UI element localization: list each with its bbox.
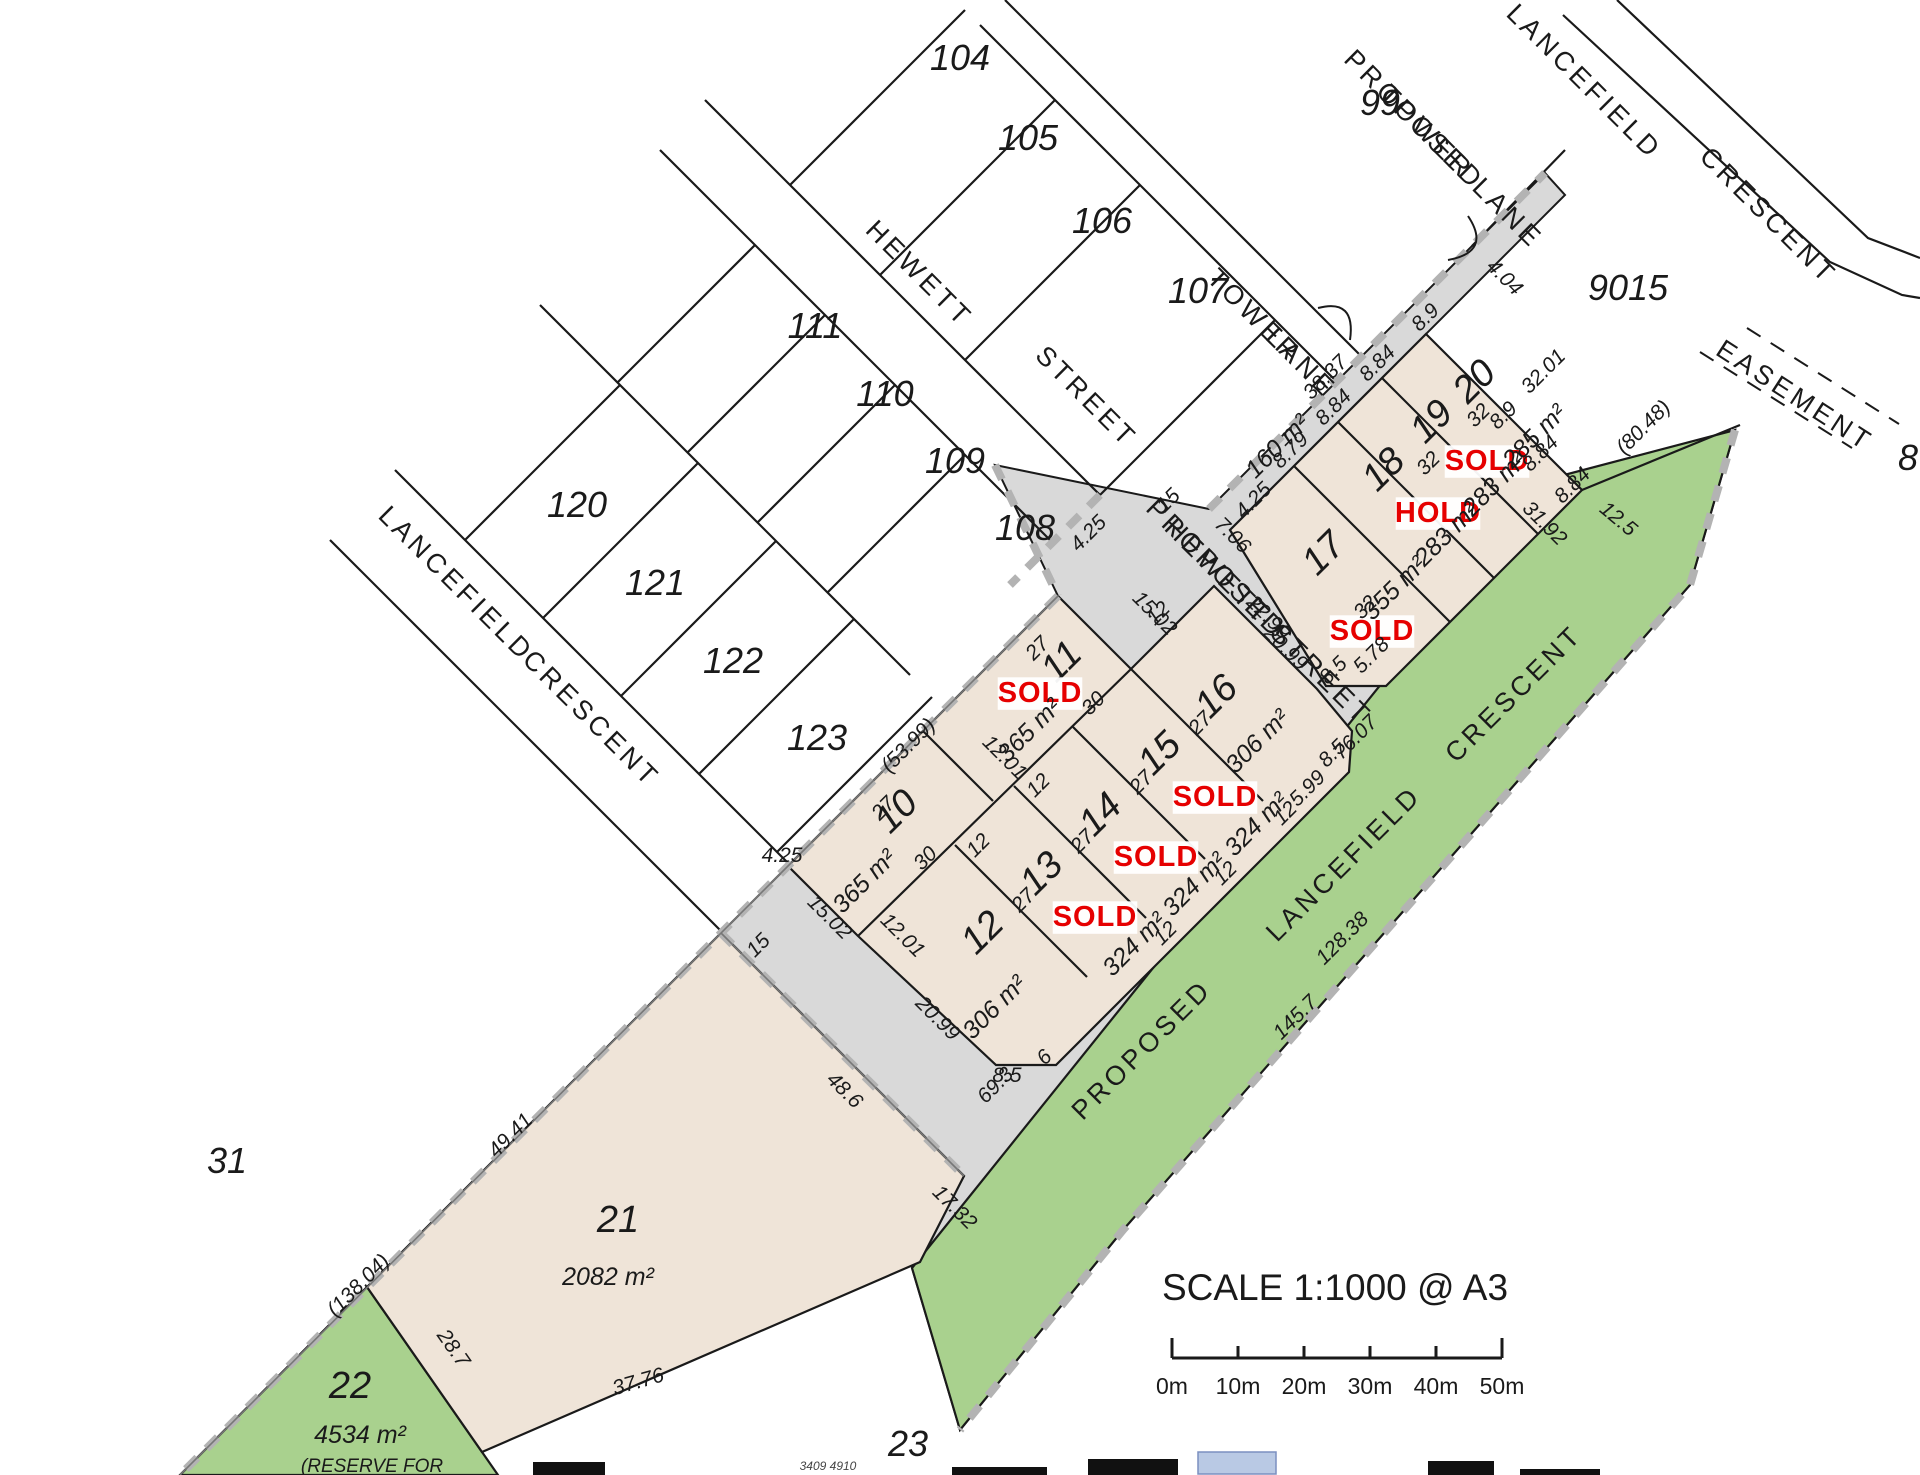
scale-bar (1172, 1338, 1502, 1358)
street-lancefield-tr-2: CRESCENT (1694, 141, 1843, 290)
lot-108-number: 108 (995, 507, 1055, 548)
edge-cut-8: 8 (1898, 437, 1918, 478)
bottom-cutoff-artifacts (533, 1452, 1600, 1475)
lot-15-status: SOLD (1173, 781, 1258, 813)
edge-cut-numbers: 3409 4910 (800, 1459, 857, 1473)
subdivision-plan-drawing: SCALE 1:1000 @ A3 0m 10m 20m 30m 40m 50m… (0, 0, 1920, 1475)
scale-tick-0: 0m (1156, 1373, 1188, 1399)
street-hewett-2: STREET (1030, 340, 1144, 454)
lot-120-number: 120 (547, 484, 607, 525)
lot-106-number: 106 (1072, 200, 1133, 241)
lot-13-status: SOLD (1053, 901, 1138, 933)
dim-32-01: 32.01 (1517, 345, 1570, 398)
lot-21-area: 2082 m² (561, 1263, 655, 1291)
bottom-logo-blue (1198, 1452, 1276, 1474)
lot-21-number: 21 (596, 1199, 639, 1241)
lot-111-number: 111 (788, 305, 843, 346)
lot-110-number: 110 (856, 373, 913, 414)
street-proposed-tower-2: TOWER LANE (1374, 79, 1549, 254)
lot-22-area: 4534 m² (314, 1421, 407, 1449)
lot-121-number: 121 (625, 562, 685, 603)
lot-122-number: 122 (703, 640, 763, 681)
lot-105-number: 105 (998, 117, 1059, 158)
lot-109-number: 109 (925, 440, 985, 481)
lot-104-number: 104 (930, 37, 990, 78)
street-lancefield-old-1: LANCEFIELD (373, 500, 540, 667)
scale-tick-30: 30m (1348, 1373, 1393, 1399)
lot-22-number: 22 (328, 1365, 371, 1407)
scale-tick-40: 40m (1414, 1373, 1459, 1399)
subdivision-plan-page: SCALE 1:1000 @ A3 0m 10m 20m 30m 40m 50m… (0, 0, 1920, 1475)
lot-123-number: 123 (787, 717, 847, 758)
scale-title: SCALE 1:1000 @ A3 (1162, 1267, 1508, 1308)
scale-tick-10: 10m (1216, 1373, 1261, 1399)
edge-cut-23: 23 (887, 1423, 928, 1464)
lot-31-number: 31 (207, 1140, 247, 1181)
scale-tick-50: 50m (1480, 1373, 1525, 1399)
scale-tick-20: 20m (1282, 1373, 1327, 1399)
dim-4-25-corner: 4.25 (762, 844, 803, 867)
lot-22-reserve: (RESERVE FOR (301, 1456, 443, 1475)
lot-14-status: SOLD (1114, 841, 1199, 873)
lot-9015-number: 9015 (1588, 267, 1669, 308)
